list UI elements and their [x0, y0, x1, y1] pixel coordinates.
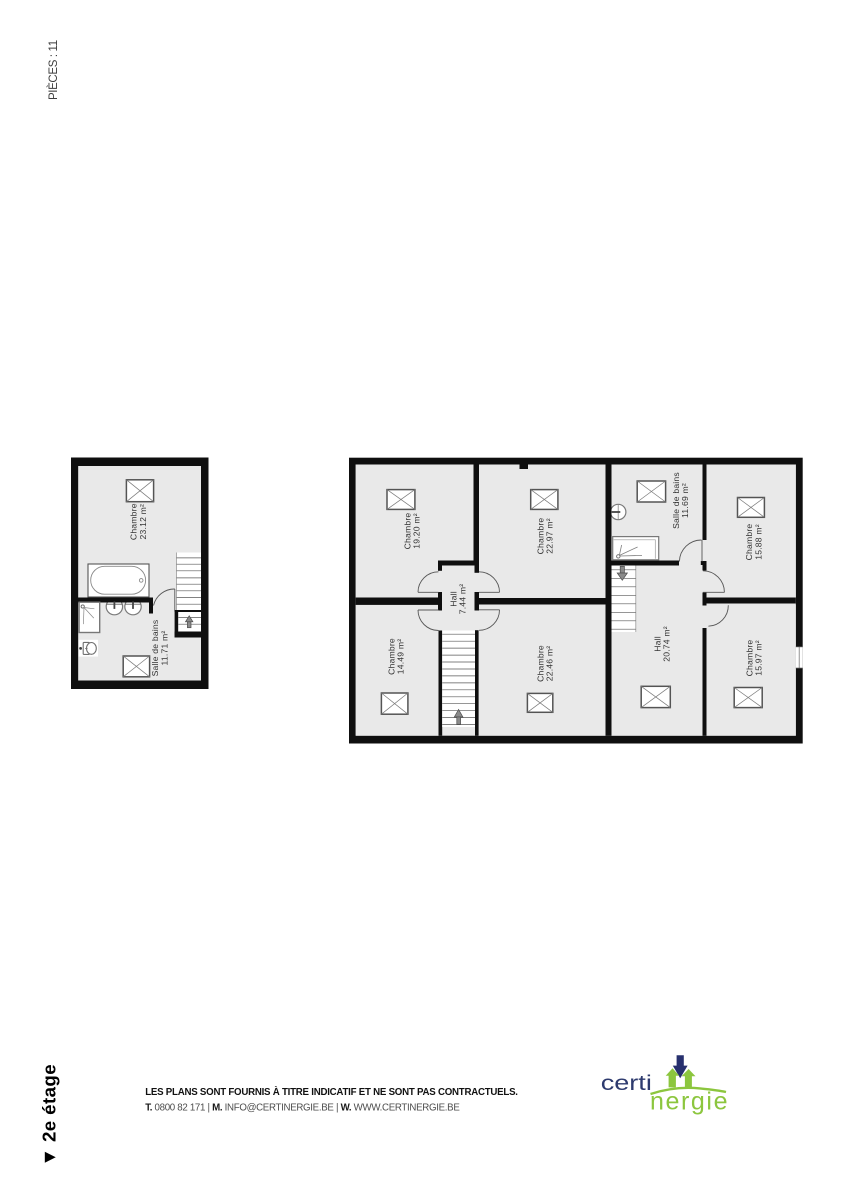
- svg-text:T. 0800 82 171 | M. INFO@CERTI: T. 0800 82 171 | M. INFO@CERTINERGIE.BE …: [145, 1103, 460, 1114]
- svg-text:Chambre15.88 m²: Chambre15.88 m²: [744, 524, 763, 561]
- svg-text:PIÈCES : 11: PIÈCES : 11: [47, 40, 60, 101]
- svg-text:Chambre19.20 m²: Chambre19.20 m²: [402, 513, 421, 550]
- svg-text:Chambre22.46 m²: Chambre22.46 m²: [535, 645, 554, 682]
- svg-text:certi: certi: [601, 1072, 652, 1096]
- svg-text:Chambre14.49 m²: Chambre14.49 m²: [386, 638, 405, 675]
- svg-text:LES PLANS SONT FOURNIS À TITRE: LES PLANS SONT FOURNIS À TITRE INDICATIF…: [145, 1087, 518, 1098]
- svg-text:Chambre15.97 m²: Chambre15.97 m²: [744, 640, 763, 677]
- svg-text:▼ 2e étage: ▼ 2e étage: [39, 1064, 60, 1166]
- svg-text:Chambre23.12 m²: Chambre23.12 m²: [129, 503, 148, 540]
- svg-text:Chambre22.97 m²: Chambre22.97 m²: [535, 518, 554, 555]
